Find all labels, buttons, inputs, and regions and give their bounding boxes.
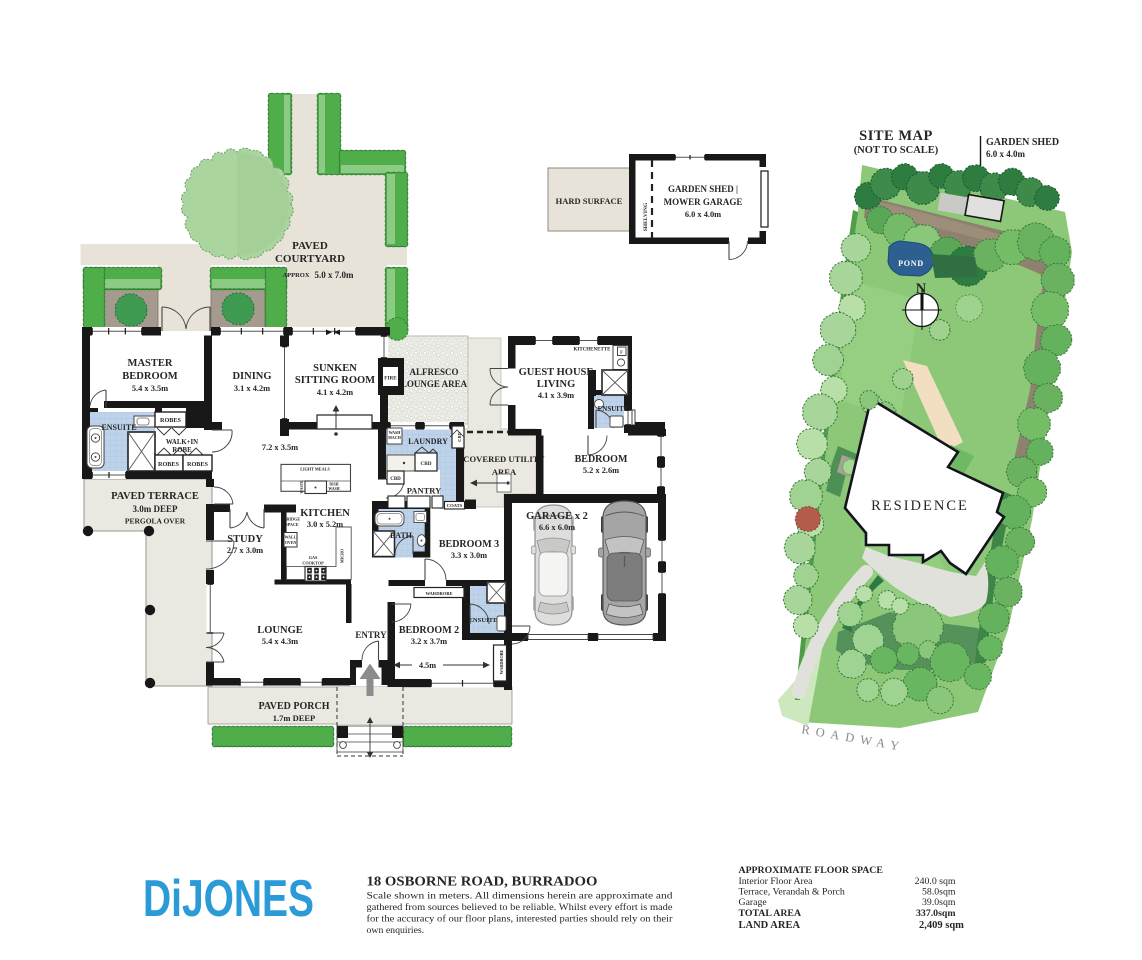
svg-text:18 OSBORNE ROAD, BURRADOO: 18 OSBORNE ROAD, BURRADOO <box>367 875 598 890</box>
svg-text:MICRO: MICRO <box>340 549 345 563</box>
svg-text:FRIDGE: FRIDGE <box>284 517 300 522</box>
svg-text:6.6 x 6.0m: 6.6 x 6.0m <box>539 523 575 532</box>
svg-text:2.7 x 3.0m: 2.7 x 3.0m <box>227 546 263 555</box>
svg-text:WALL: WALL <box>285 535 297 540</box>
svg-text:STUDY: STUDY <box>227 534 263 545</box>
svg-text:3.0 x 5.2m: 3.0 x 5.2m <box>307 520 343 529</box>
svg-text:BEDROOM 3: BEDROOM 3 <box>439 539 499 550</box>
svg-text:SITTING ROOM: SITTING ROOM <box>295 375 375 386</box>
svg-text:3.3 x 3.0m: 3.3 x 3.0m <box>451 551 487 560</box>
svg-text:COOKTOP: COOKTOP <box>302 561 324 566</box>
svg-text:1.7m DEEP: 1.7m DEEP <box>273 713 316 723</box>
svg-text:CBD: CBD <box>390 477 401 482</box>
svg-text:LAND AREA: LAND AREA <box>739 920 801 931</box>
svg-text:WARDROBE: WARDROBE <box>425 591 452 596</box>
svg-text:337.0sqm: 337.0sqm <box>916 908 955 919</box>
svg-text:KITCHENETTE: KITCHENETTE <box>574 348 612 353</box>
svg-text:APPROXIMATE FLOOR SPACE: APPROXIMATE FLOOR SPACE <box>739 865 884 876</box>
svg-text:BEDROOM 2: BEDROOM 2 <box>399 625 459 636</box>
svg-text:4.1 x 4.2m: 4.1 x 4.2m <box>317 388 353 397</box>
svg-text:F: F <box>620 350 623 355</box>
svg-text:SITE MAP: SITE MAP <box>859 128 933 144</box>
svg-text:POND: POND <box>898 259 924 268</box>
svg-text:PAVED TERRACE: PAVED TERRACE <box>111 491 199 502</box>
svg-text:GAS: GAS <box>309 555 318 560</box>
svg-text:2,409 sqm: 2,409 sqm <box>919 920 964 931</box>
svg-text:(NOT TO SCALE): (NOT TO SCALE) <box>854 145 939 156</box>
svg-text:ROBES: ROBES <box>187 461 209 468</box>
svg-text:LAUNDRY: LAUNDRY <box>408 437 448 446</box>
svg-text:GARDEN SHED |: GARDEN SHED | <box>668 184 738 194</box>
svg-text:COVERED UTILITY: COVERED UTILITY <box>463 454 545 464</box>
svg-text:WASH: WASH <box>328 487 339 491</box>
svg-text:BEDROOM: BEDROOM <box>575 454 628 465</box>
svg-text:Interior Floor Area: Interior Floor Area <box>739 876 814 887</box>
svg-text:SPACE: SPACE <box>285 522 299 527</box>
svg-text:gathered from sources believed: gathered from sources believed to be rel… <box>367 902 674 913</box>
svg-text:COURTYARD: COURTYARD <box>275 253 345 265</box>
svg-text:PANTRY: PANTRY <box>407 486 442 496</box>
svg-text:OVEN: OVEN <box>285 540 297 545</box>
svg-text:LIGHT MEALS: LIGHT MEALS <box>300 467 330 472</box>
svg-text:4.1 x 3.9m: 4.1 x 3.9m <box>538 391 574 400</box>
svg-text:MOWER GARAGE: MOWER GARAGE <box>664 197 743 207</box>
svg-text:LIVING: LIVING <box>537 379 576 390</box>
svg-text:LOUNGE: LOUNGE <box>257 625 303 636</box>
svg-text:3.1 x 4.2m: 3.1 x 4.2m <box>234 384 270 393</box>
svg-text:DISH: DISH <box>329 483 338 487</box>
svg-text:39.0sqm: 39.0sqm <box>922 897 956 908</box>
svg-text:for the accuracy of our floor: for the accuracy of our floor plans, int… <box>367 914 674 925</box>
svg-text:4.5m: 4.5m <box>419 661 436 670</box>
svg-text:own enquiries.: own enquiries. <box>367 925 425 936</box>
svg-text:WARDROBE: WARDROBE <box>499 649 504 674</box>
svg-text:ENSUITE: ENSUITE <box>598 405 629 413</box>
svg-text:ENTRY: ENTRY <box>355 630 387 640</box>
svg-text:Garage: Garage <box>739 897 768 908</box>
svg-text:DINING: DINING <box>232 371 271 382</box>
svg-text:ALFRESCO: ALFRESCO <box>409 367 458 377</box>
svg-text:DiJONES: DiJONES <box>143 870 314 928</box>
svg-text:GARAGE x 2: GARAGE x 2 <box>526 511 588 522</box>
svg-text:6.0 x 4.0m: 6.0 x 4.0m <box>986 149 1026 159</box>
svg-text:BATH: BATH <box>390 531 413 540</box>
svg-text:5.4 x 3.5m: 5.4 x 3.5m <box>132 384 168 393</box>
svg-text:58.0sqm: 58.0sqm <box>922 887 956 898</box>
svg-text:KITCHEN: KITCHEN <box>300 508 350 519</box>
svg-text:MASTER: MASTER <box>128 358 173 369</box>
svg-text:SUNKEN: SUNKEN <box>313 363 357 374</box>
svg-text:Terrace, Verandah & Porch: Terrace, Verandah & Porch <box>739 887 845 898</box>
svg-text:HARD SURFACE: HARD SURFACE <box>556 196 623 206</box>
svg-text:5.2 x 2.6m: 5.2 x 2.6m <box>583 466 619 475</box>
svg-text:PERGOLA OVER: PERGOLA OVER <box>125 517 186 526</box>
svg-text:240.0 sqm: 240.0 sqm <box>915 876 956 887</box>
svg-text:ENSUITE: ENSUITE <box>469 617 499 624</box>
svg-text:3.0m DEEP: 3.0m DEEP <box>133 504 179 514</box>
svg-text:ROBES: ROBES <box>160 417 182 424</box>
svg-text:PAVED PORCH: PAVED PORCH <box>258 701 329 712</box>
svg-text:WASTE: WASTE <box>300 480 304 494</box>
svg-text:COATS: COATS <box>447 503 463 508</box>
svg-text:APPROX: APPROX <box>282 272 309 279</box>
svg-text:SHELVING: SHELVING <box>643 202 649 231</box>
svg-text:BEDROOM: BEDROOM <box>122 371 178 382</box>
svg-text:FIRE: FIRE <box>384 376 397 382</box>
svg-text:7.2 x 3.5m: 7.2 x 3.5m <box>262 443 298 452</box>
svg-text:Scale shown in meters. All: Scale shown in meters. All dimensions he… <box>367 891 673 902</box>
svg-text:5.4 x 4.3m: 5.4 x 4.3m <box>262 637 298 646</box>
svg-text:LOUNGE AREA: LOUNGE AREA <box>401 379 468 389</box>
svg-text:ENSUITE: ENSUITE <box>101 423 136 432</box>
svg-text:ROBES: ROBES <box>158 461 180 468</box>
svg-text:CBD: CBD <box>421 461 432 467</box>
svg-text:TOTAL AREA: TOTAL AREA <box>739 908 802 919</box>
svg-text:MACH: MACH <box>388 435 402 440</box>
svg-text:RESIDENCE: RESIDENCE <box>871 498 969 514</box>
svg-text:6.0 x 4.0m: 6.0 x 4.0m <box>685 210 721 219</box>
svg-text:GARDEN SHED: GARDEN SHED <box>986 137 1059 148</box>
svg-text:WALK+IN: WALK+IN <box>166 439 198 446</box>
svg-text:5.0 x 7.0m: 5.0 x 7.0m <box>315 270 355 280</box>
svg-text:PAVED: PAVED <box>292 240 328 252</box>
svg-text:3.2 x 3.7m: 3.2 x 3.7m <box>411 637 447 646</box>
svg-text:GUEST HOUSE: GUEST HOUSE <box>519 367 594 378</box>
